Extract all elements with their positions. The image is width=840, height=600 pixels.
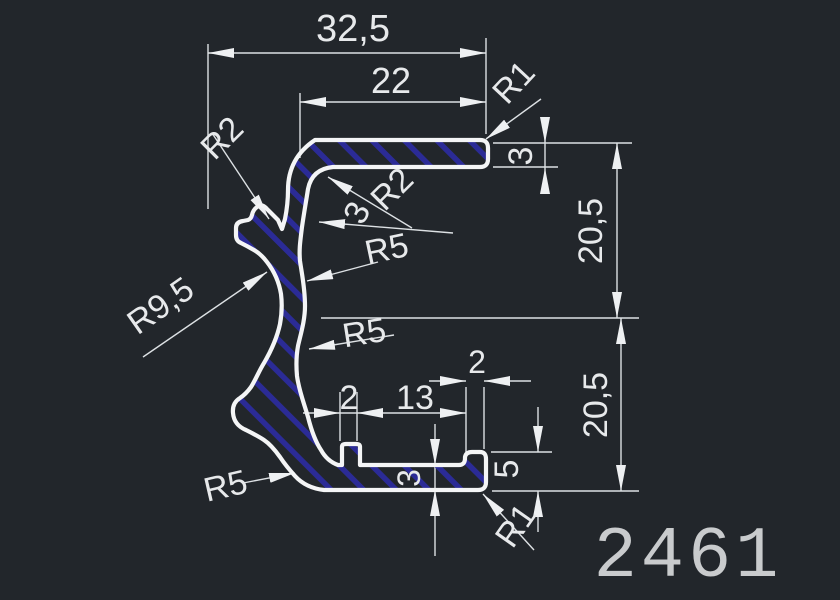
profile-drawing: 32,5 22 R1 3 R2 R2 3 R5 R9,5 R5 20,5 2 1… <box>0 0 840 600</box>
cad-drawing-canvas[interactable]: 32,5 22 R1 3 R2 R2 3 R5 R9,5 R5 20,5 2 1… <box>0 0 840 600</box>
dim-top-right-radius: R1 <box>485 54 542 112</box>
dim-top-flange-thickness: 3 <box>502 147 540 166</box>
drawing-number: 2461 <box>594 516 783 598</box>
dim-rib-width: 2 <box>340 379 359 417</box>
dim-lower-web-radius: R5 <box>340 311 389 355</box>
dim-left-recess-radius: R9,5 <box>120 270 201 342</box>
dim-lower-height: 20,5 <box>577 372 615 438</box>
dim-top-width: 22 <box>371 60 411 101</box>
dim-lip-width: 2 <box>468 344 486 380</box>
dim-bottom-left-radius: R5 <box>200 463 251 510</box>
dim-upper-height: 20,5 <box>572 198 610 264</box>
dim-upper-web-radius: R5 <box>362 226 412 272</box>
dim-channel-width: 13 <box>396 379 434 417</box>
dim-overall-width: 32,5 <box>316 8 390 50</box>
dim-outer-corner-radius: R2 <box>193 109 251 167</box>
dim-lip-height: 5 <box>488 460 526 479</box>
dim-bottom-flange-thickness: 3 <box>391 469 427 487</box>
